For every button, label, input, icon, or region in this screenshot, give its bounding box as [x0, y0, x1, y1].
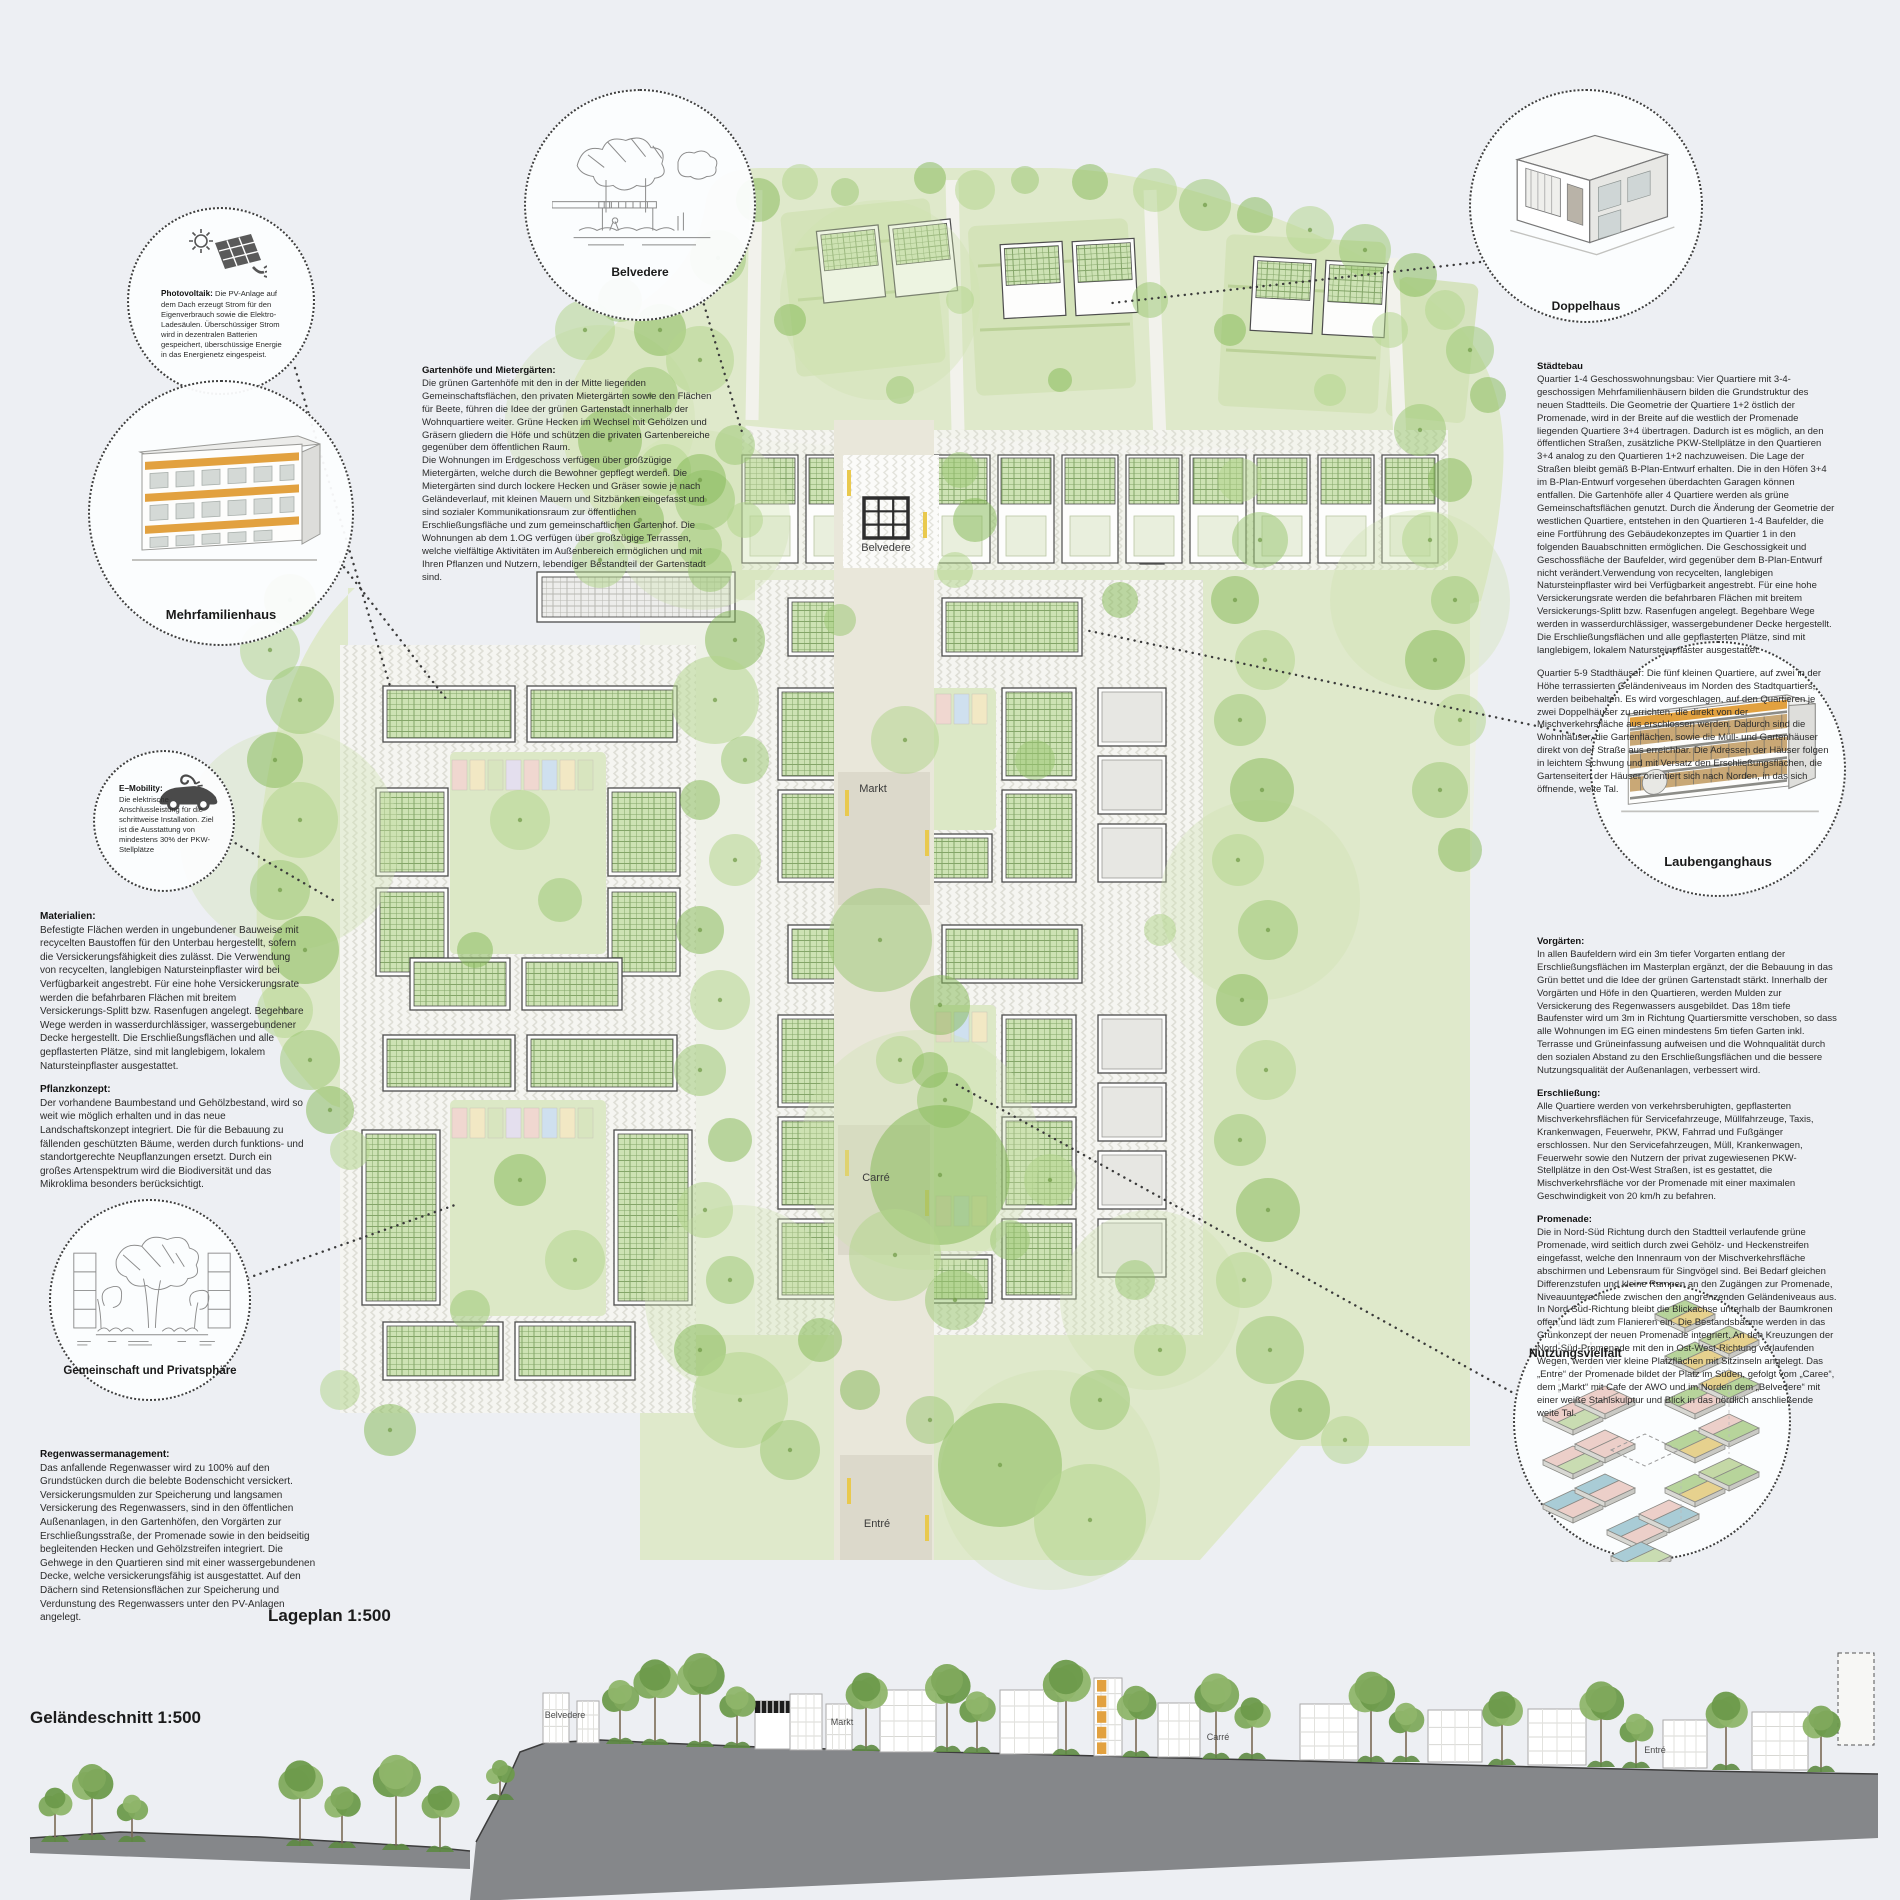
section-title: Geländeschnitt 1:500	[30, 1708, 201, 1728]
laubenganghaus-label: Laubenganghaus	[1592, 854, 1844, 869]
textblock-gartenhoefe: Gartenhöfe und Mietergärten: Die grünen …	[422, 365, 720, 584]
mehrfamilienhaus-label: Mehrfamilienhaus	[90, 607, 352, 622]
vorgaerten-title: Vorgärten:	[1537, 936, 1837, 949]
gemeinschaft-label: Gemeinschaft und Privatsphäre	[51, 1365, 249, 1377]
plan-label-belvedere: Belvedere	[861, 542, 911, 554]
staedtebau-title: Städtebau	[1537, 361, 1835, 374]
photovoltaik-text: Photovoltaik: Die PV-Anlage auf dem Dach…	[161, 289, 287, 360]
presentation-board: Lageplan 1:500 Geländeschnitt 1:500 Belv…	[0, 0, 1900, 1900]
materialien-title: Materialien:	[40, 910, 304, 924]
duplex-house-illustration	[1493, 119, 1683, 259]
callout-mehrfamilienhaus: Mehrfamilienhaus	[88, 380, 354, 646]
apartment-building-illustration	[112, 422, 332, 582]
pflanzkonzept-title: Pflanzkonzept:	[40, 1083, 304, 1097]
gartenhoefe-title: Gartenhöfe und Mietergärten:	[422, 365, 720, 378]
erschliessung-title: Erschließung:	[1537, 1088, 1837, 1101]
callout-gemeinschaft: Gemeinschaft und Privatsphäre	[49, 1199, 251, 1401]
solar-panel-sun-icon	[187, 227, 267, 285]
photovoltaik-title: Photovoltaik:	[161, 289, 213, 298]
section-label-belvedere: Belvedere	[545, 1710, 586, 1720]
plan-label-entre: Entré	[864, 1518, 890, 1530]
callout-belvedere: Belvedere	[524, 89, 756, 321]
callout-emobility: E–Mobility: Die elektrische Anschlusslei…	[93, 750, 235, 892]
section-label-markt: Markt	[831, 1717, 854, 1727]
doppelhaus-label: Doppelhaus	[1471, 299, 1701, 313]
callout-doppelhaus: Doppelhaus	[1469, 89, 1703, 323]
section-label-entre: Entré	[1644, 1745, 1666, 1755]
plan-label-carre: Carré	[862, 1172, 890, 1184]
callout-photovoltaik: Photovoltaik: Die PV-Anlage auf dem Dach…	[127, 207, 315, 395]
emobility-title: E–Mobility:	[119, 784, 163, 793]
textblock-vorgaerten: Vorgärten: In allen Baufeldern wird ein …	[1537, 936, 1837, 1421]
section-label-carre: Carré	[1207, 1732, 1230, 1742]
promenade-title: Promenade:	[1537, 1214, 1837, 1227]
plan-label-markt: Markt	[859, 783, 887, 795]
textblock-regenwasser: Regenwassermanagement: Das anfallende Re…	[40, 1448, 316, 1625]
belvedere-callout-label: Belvedere	[526, 265, 754, 279]
hand-sketch-trees	[67, 1223, 237, 1353]
regenwasser-title: Regenwassermanagement:	[40, 1448, 316, 1462]
textblock-staedtebau: Städtebau Quartier 1-4 Geschosswohnungsb…	[1537, 361, 1835, 797]
entre-plaza	[840, 1455, 932, 1560]
hand-sketch-pergola	[552, 115, 732, 255]
emobility-text: E–Mobility: Die elektrische Anschlusslei…	[119, 784, 215, 855]
terrain-section	[30, 1653, 1878, 1900]
textblock-materialien: Materialien: Befestigte Flächen werden i…	[40, 910, 304, 1192]
